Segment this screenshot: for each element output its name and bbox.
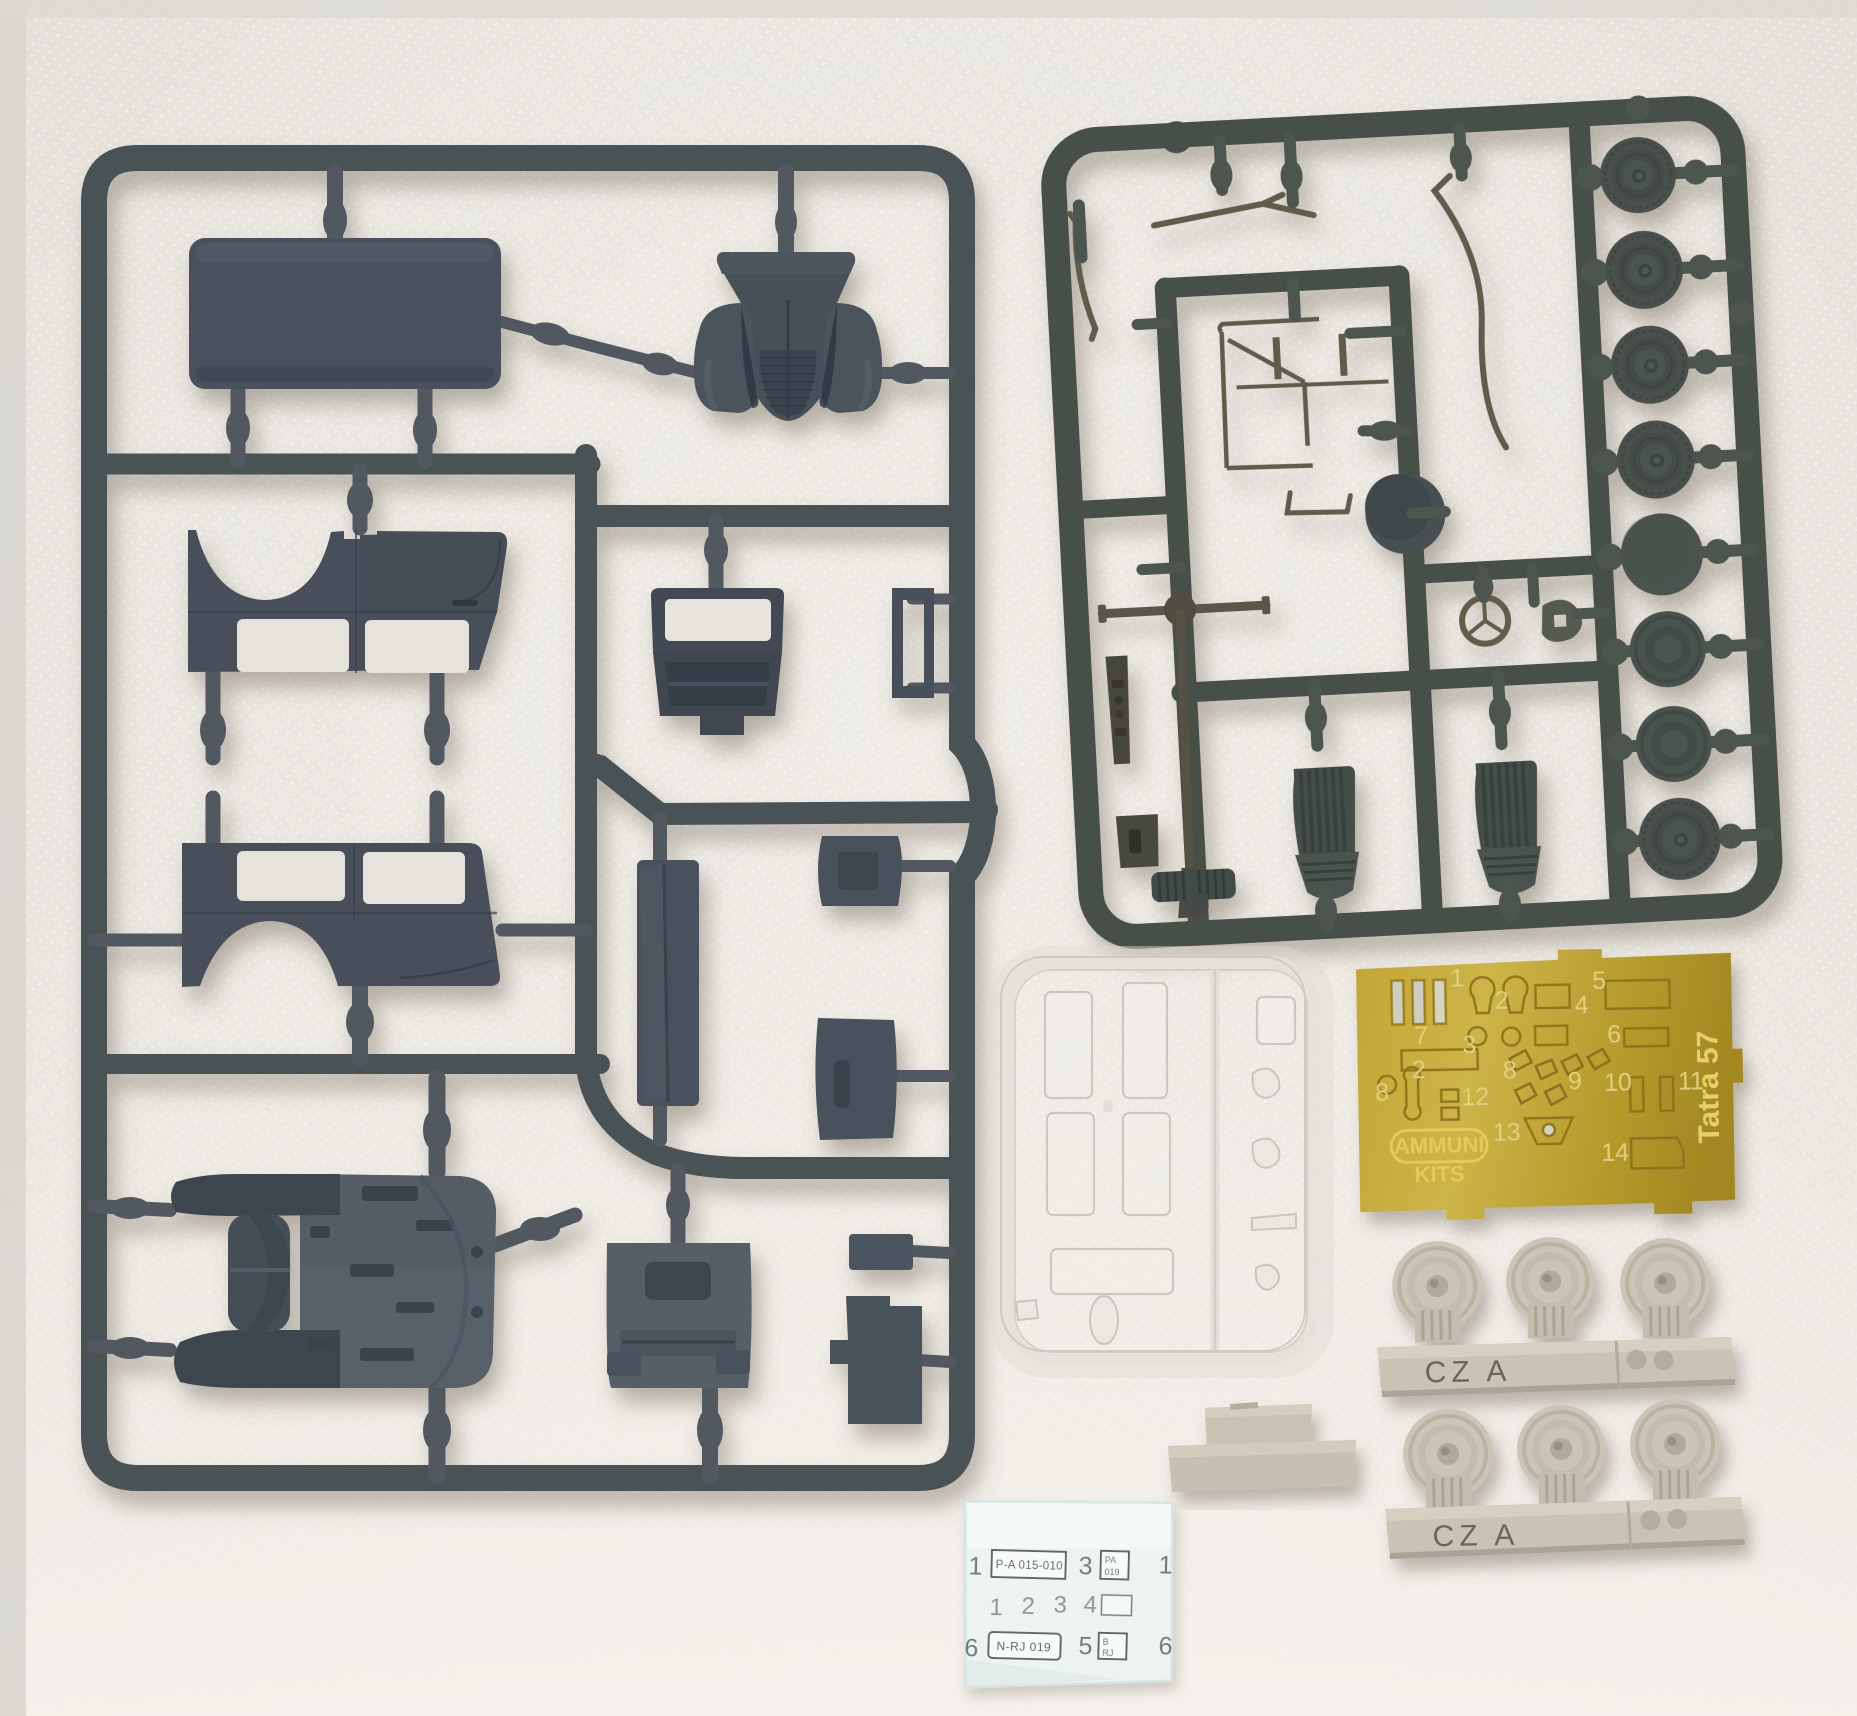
svg-text:5: 5 (1592, 967, 1606, 995)
svg-text:1: 1 (1450, 964, 1464, 992)
svg-text:8: 8 (1375, 1079, 1389, 1107)
svg-text:B: B (1103, 1637, 1109, 1647)
svg-text:2: 2 (1494, 987, 1508, 1015)
svg-text:2: 2 (1021, 1593, 1035, 1620)
svg-text:1: 1 (968, 1552, 983, 1580)
svg-text:CZ A: CZ A (1424, 1355, 1511, 1390)
svg-text:PA: PA (1105, 1555, 1117, 1565)
svg-text:P-A 015-010: P-A 015-010 (995, 1559, 1063, 1573)
svg-text:Tatra 57: Tatra 57 (1691, 1030, 1726, 1143)
svg-text:4: 4 (1574, 991, 1588, 1019)
svg-text:13: 13 (1493, 1118, 1521, 1146)
svg-text:6: 6 (1158, 1632, 1173, 1660)
svg-text:AMMUNI: AMMUNI (1394, 1132, 1485, 1159)
svg-text:9: 9 (1568, 1067, 1582, 1095)
svg-text:8: 8 (1503, 1056, 1517, 1084)
svg-text:CZ A: CZ A (1432, 1519, 1519, 1554)
svg-text:N-RJ 019: N-RJ 019 (996, 1639, 1051, 1654)
svg-text:5: 5 (1078, 1632, 1093, 1660)
svg-text:019: 019 (1104, 1567, 1119, 1577)
svg-text:12: 12 (1461, 1083, 1489, 1111)
svg-text:7: 7 (1414, 1022, 1428, 1050)
svg-text:KITS: KITS (1414, 1161, 1465, 1187)
svg-text:1: 1 (1158, 1551, 1173, 1579)
svg-text:RJ: RJ (1102, 1648, 1113, 1658)
svg-text:1: 1 (989, 1594, 1003, 1621)
svg-text:4: 4 (1083, 1591, 1097, 1618)
svg-text:3: 3 (1053, 1592, 1067, 1619)
svg-text:3: 3 (1078, 1552, 1093, 1580)
svg-text:6: 6 (964, 1634, 979, 1662)
svg-text:14: 14 (1601, 1139, 1629, 1167)
svg-text:10: 10 (1604, 1068, 1632, 1096)
svg-text:3: 3 (1462, 1031, 1476, 1059)
svg-text:2: 2 (1412, 1056, 1426, 1084)
svg-text:6: 6 (1607, 1021, 1621, 1049)
